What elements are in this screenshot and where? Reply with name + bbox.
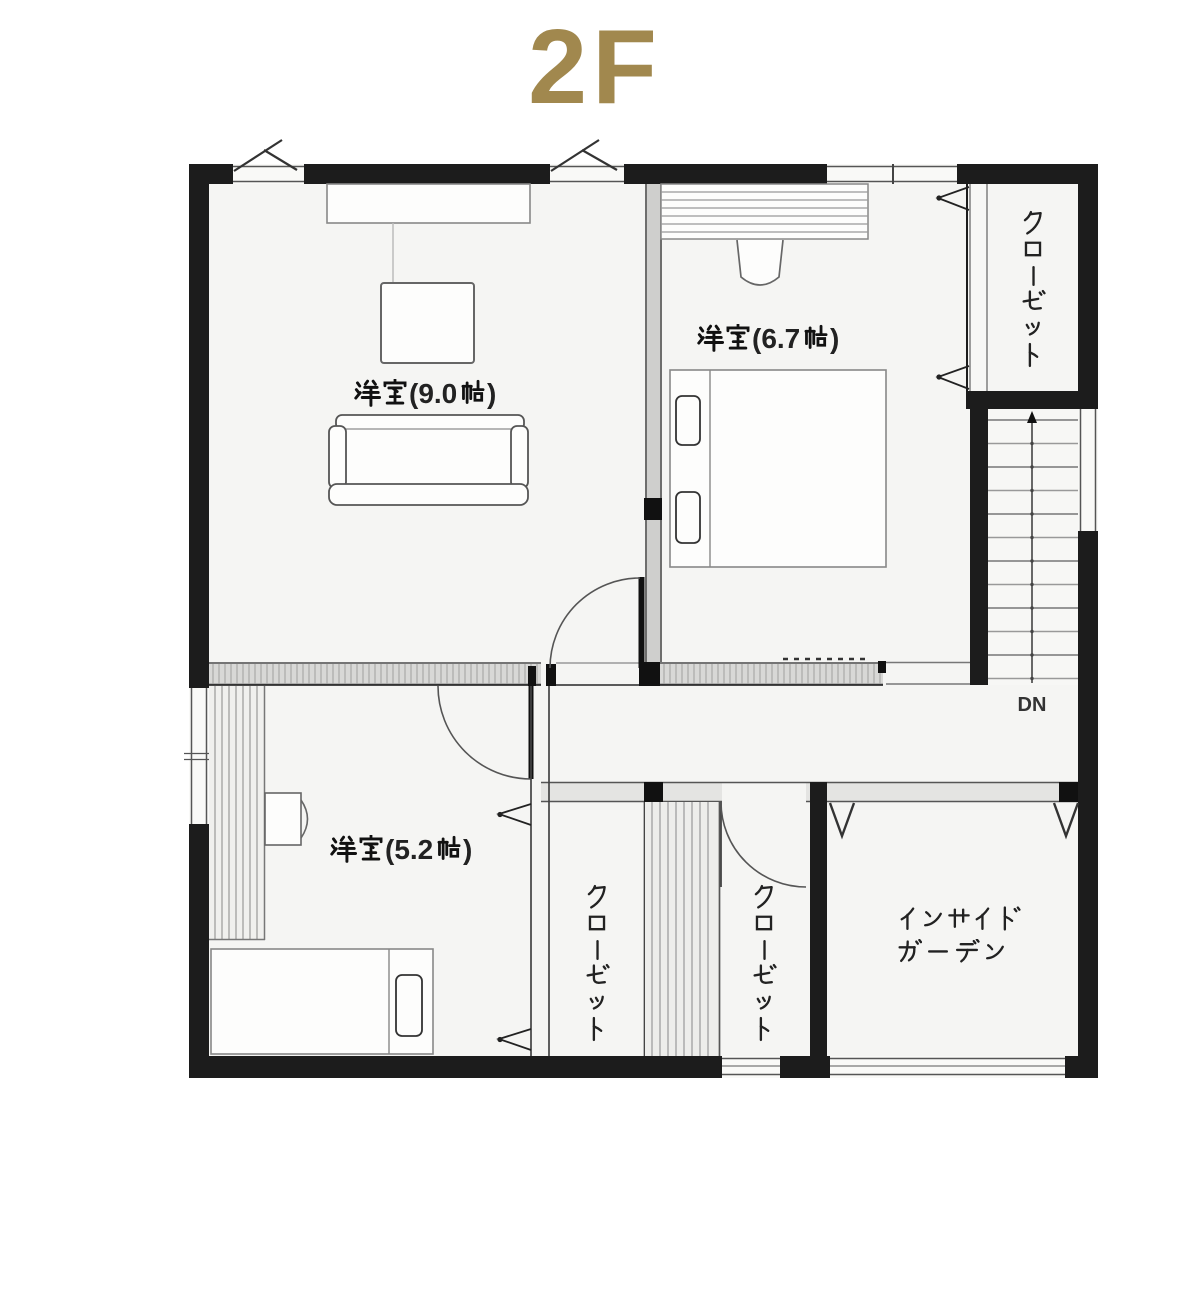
svg-text:(9.0: (9.0: [409, 378, 457, 409]
svg-text:(6.7: (6.7: [752, 323, 800, 354]
svg-text:DN: DN: [1018, 694, 1047, 716]
svg-text:): ): [487, 378, 496, 409]
svg-text:): ): [830, 323, 839, 354]
svg-text:(5.2: (5.2: [385, 834, 433, 865]
svg-text:2F: 2F: [528, 8, 662, 126]
svg-text:): ): [463, 834, 472, 865]
